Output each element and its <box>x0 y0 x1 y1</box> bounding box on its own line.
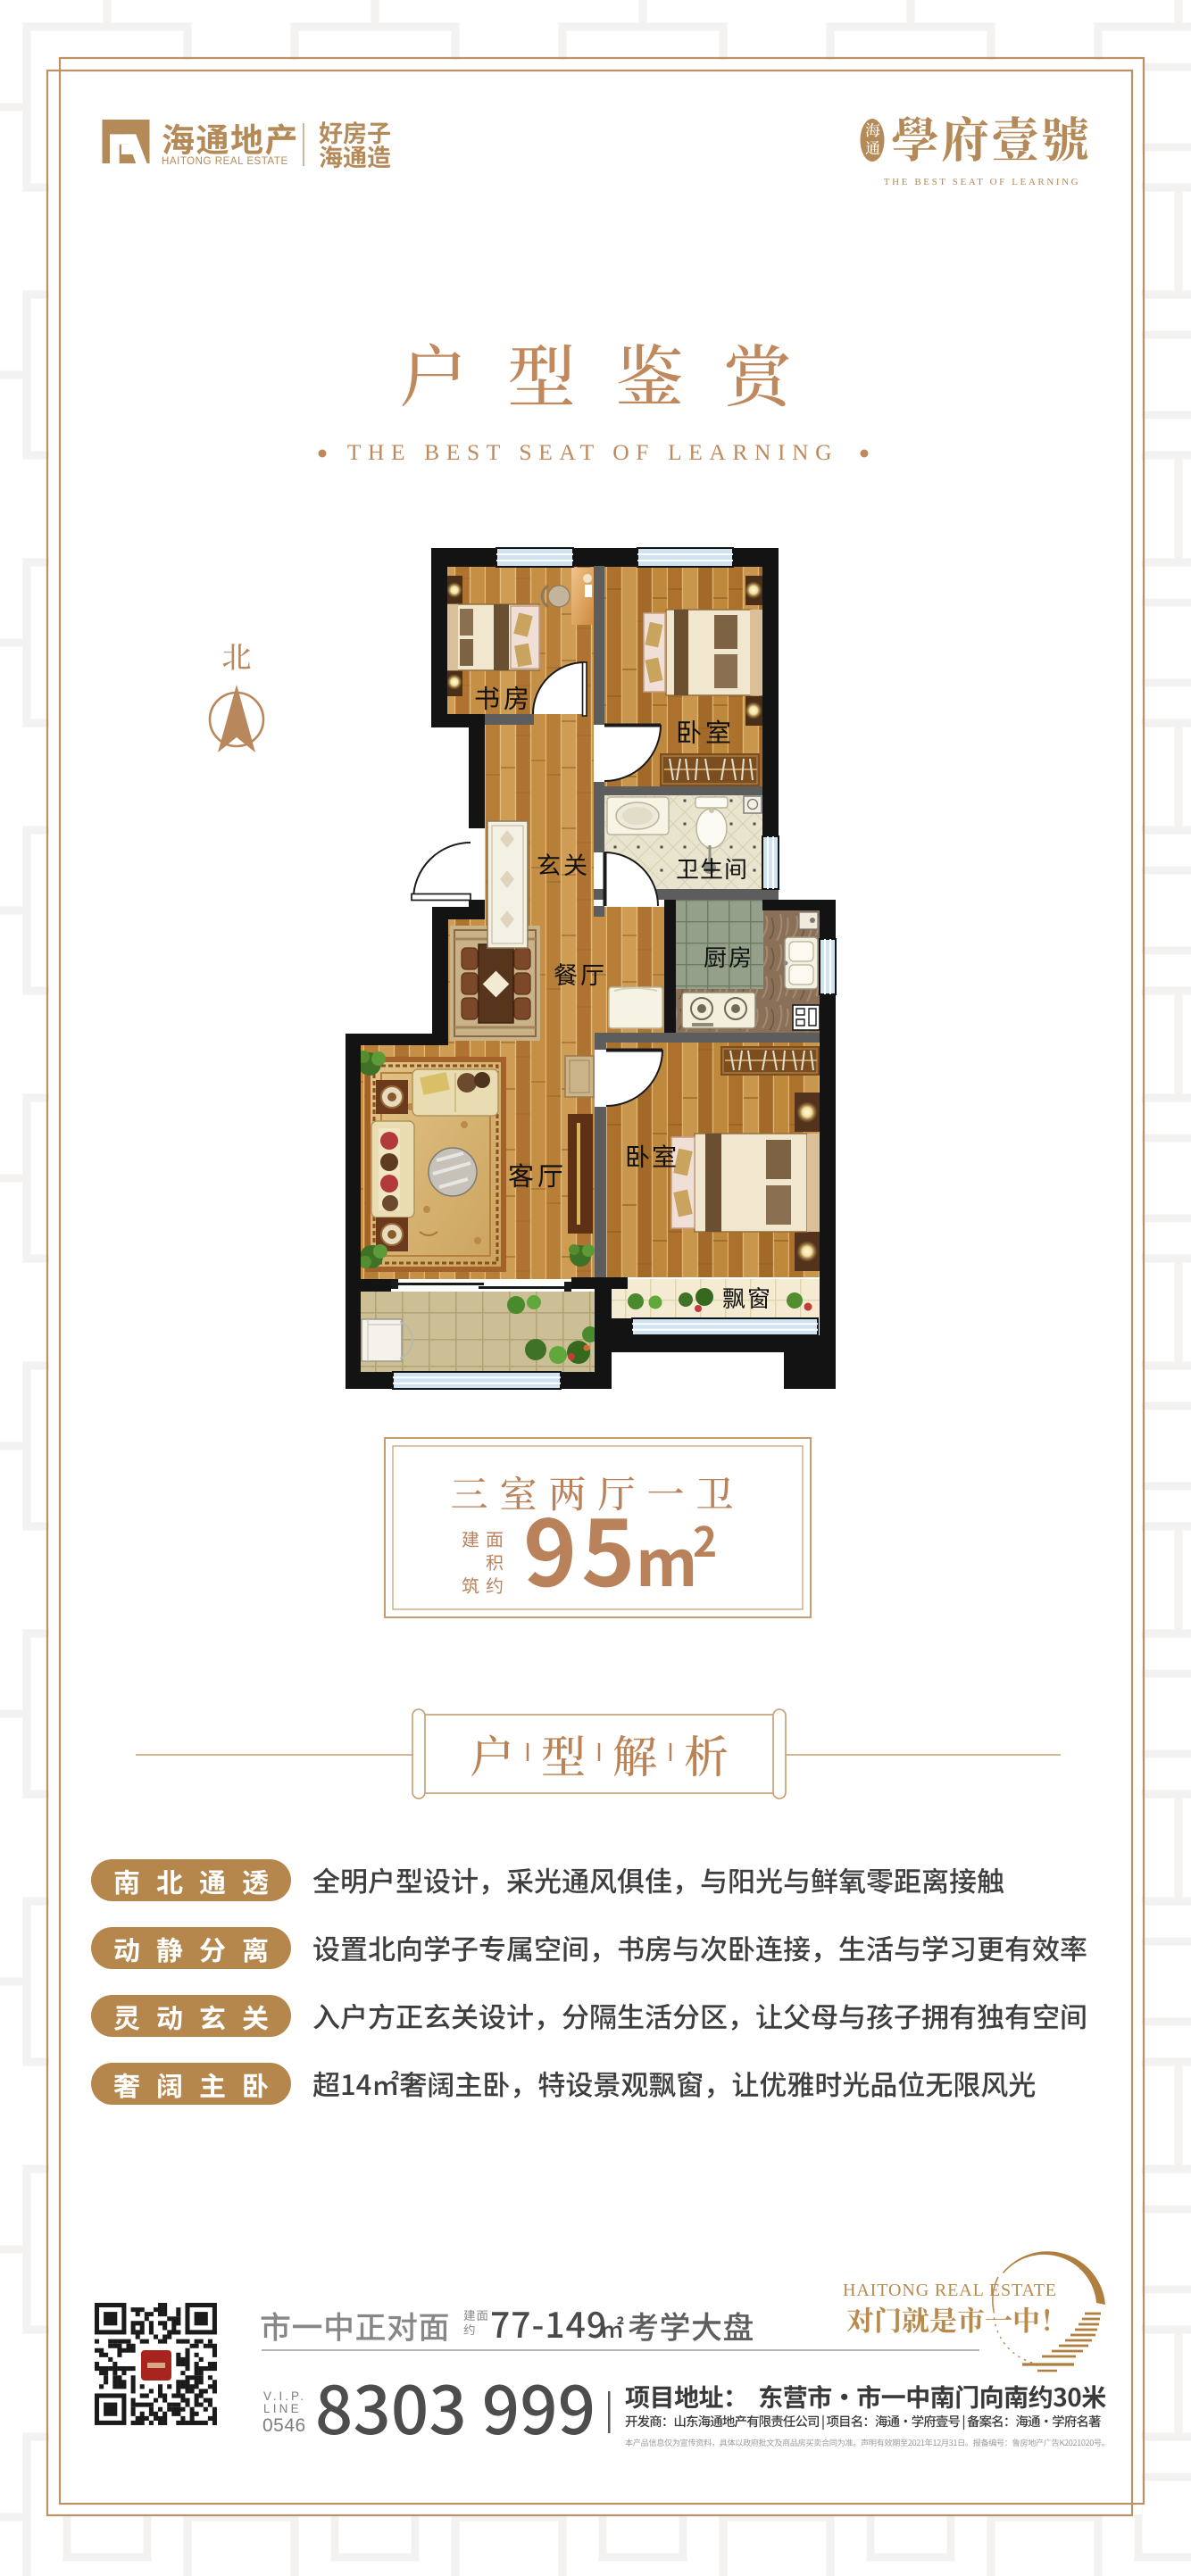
svg-text:HAITONG REAL ESTATE: HAITONG REAL ESTATE <box>162 156 288 167</box>
svg-text:THE BEST SEAT OF LEARNING: THE BEST SEAT OF LEARNING <box>884 177 1080 187</box>
svg-text:HAITONG REAL ESTATE: HAITONG REAL ESTATE <box>843 2281 1057 2300</box>
svg-text:0546: 0546 <box>262 2415 306 2436</box>
svg-text:LINE: LINE <box>263 2402 302 2415</box>
svg-text:THE BEST SEAT OF LEARNING: THE BEST SEAT OF LEARNING <box>347 439 838 465</box>
svg-text:V.I.P.: V.I.P. <box>263 2389 306 2403</box>
